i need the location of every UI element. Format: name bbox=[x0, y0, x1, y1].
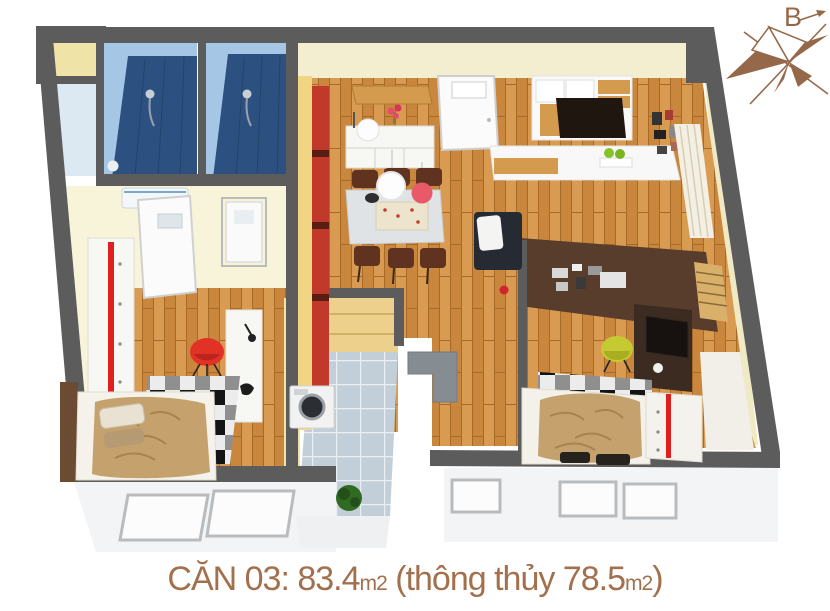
dining-chair bbox=[420, 248, 446, 268]
bed-left bbox=[60, 382, 216, 482]
wall-top bbox=[36, 27, 712, 43]
pendant-lamp-white bbox=[377, 172, 405, 200]
dining-set bbox=[346, 150, 446, 284]
green-apple bbox=[604, 148, 614, 158]
pillow-dark bbox=[596, 454, 630, 465]
skylight-window bbox=[120, 495, 208, 540]
dining-chair bbox=[352, 170, 378, 188]
floorplan-page: B CĂN 03: 83.4m2 (thông thủy 78.5m2) bbox=[0, 0, 830, 611]
washing-machine bbox=[290, 386, 334, 428]
sofa-cushion bbox=[476, 215, 503, 251]
pendant-lamp-pink bbox=[412, 183, 433, 204]
loggia-parapet bbox=[296, 516, 390, 548]
caption-part2: (thông thủy 78.5 bbox=[387, 560, 625, 598]
compass-north-label: B bbox=[784, 2, 802, 32]
potted-plant bbox=[336, 485, 362, 511]
red-chair bbox=[190, 338, 224, 377]
caption-part1: CĂN 03: 83.4 bbox=[167, 560, 359, 598]
skylight-window bbox=[207, 491, 294, 536]
wall-shelf bbox=[352, 86, 432, 104]
green-apple bbox=[615, 149, 625, 159]
table-runner bbox=[376, 202, 428, 230]
bed-blanket bbox=[538, 393, 642, 462]
bathroom-1 bbox=[103, 34, 197, 178]
tv-wall-unit bbox=[532, 76, 632, 140]
fruit-dish bbox=[600, 158, 632, 167]
desk-right bbox=[634, 304, 692, 392]
dining-chair bbox=[388, 248, 414, 268]
bathroom-1-fixture bbox=[108, 161, 119, 172]
bed-headboard bbox=[60, 382, 78, 482]
decor-sphere bbox=[357, 119, 379, 141]
bed-right bbox=[522, 388, 650, 465]
red-pillow bbox=[500, 286, 509, 295]
balcony-right bbox=[444, 468, 778, 542]
caption-apartment-area: CĂN 03: 83.4m2 (thông thủy 78.5m2) bbox=[0, 560, 830, 599]
hall-door bbox=[222, 198, 266, 266]
mug bbox=[653, 363, 663, 373]
caption-unit2: m2 bbox=[625, 572, 652, 595]
wardrobe-right bbox=[646, 392, 702, 462]
wardrobe-left bbox=[88, 238, 134, 402]
kitchen-counter bbox=[408, 352, 457, 402]
wall-bath-bottom bbox=[96, 174, 298, 186]
dining-chair bbox=[354, 246, 380, 266]
balcony-window bbox=[452, 480, 500, 512]
balcony-window bbox=[624, 484, 676, 518]
entry-door bbox=[438, 76, 498, 150]
compass-rose-icon: B bbox=[726, 2, 828, 104]
caption-part3: ) bbox=[652, 560, 662, 598]
wall-kitchen-side bbox=[394, 288, 404, 346]
tall-wardrobe-corridor bbox=[298, 76, 329, 430]
tv-bench bbox=[490, 146, 680, 180]
tv-screen bbox=[556, 98, 626, 138]
wall-bath-divider-2 bbox=[198, 34, 206, 180]
bedroom-left-door bbox=[138, 196, 196, 298]
balcony-window bbox=[560, 482, 616, 516]
floorplan-3d-rendering: B bbox=[0, 0, 830, 611]
bathroom-2 bbox=[205, 34, 289, 178]
table-vase bbox=[365, 193, 379, 203]
wall-bath-divider-1 bbox=[96, 34, 104, 180]
caption-unit1: m2 bbox=[360, 572, 387, 595]
computer-monitor bbox=[646, 316, 688, 358]
pillow-dark bbox=[560, 452, 590, 463]
